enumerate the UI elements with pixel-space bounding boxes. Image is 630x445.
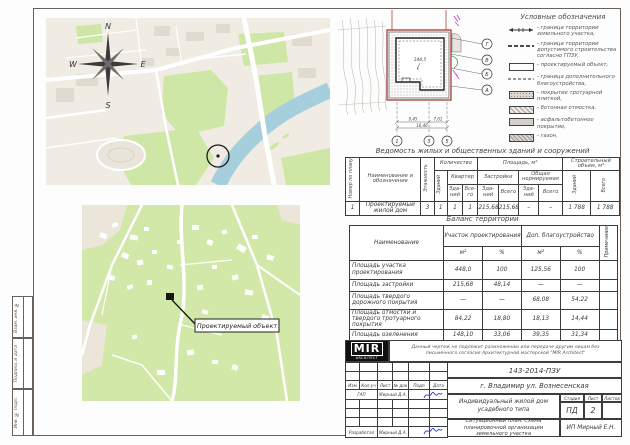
axis-label: 5 — [445, 139, 448, 145]
legend-label: - граница дополнительного благоустройств… — [537, 74, 621, 87]
compass-s: S — [105, 101, 110, 110]
role-developer-name: Мирный Д.А. — [378, 427, 409, 438]
legend-item: - покрытие тротуарной плиткой, — [505, 90, 621, 103]
dim-label: 9,45 — [409, 117, 418, 122]
mir-logo: MIR ARCHITECT — [345, 340, 389, 362]
cell-name: Площадь отмостки и твердого тротуарного … — [350, 309, 444, 329]
sheet-label: Лист — [584, 394, 602, 402]
cell: 1 — [447, 201, 462, 215]
buildings-table: Номер по плану Наименование и обозначени… — [345, 157, 620, 216]
legend-title: Условные обозначения — [505, 13, 621, 21]
green-mark — [452, 56, 458, 68]
topo-contours — [338, 18, 387, 115]
frame-attr-vzam: Взам. инв. № — [12, 296, 33, 338]
cell: 215,68 — [478, 201, 498, 215]
col-vol-buildings: Зданий — [562, 171, 591, 202]
role-gap-name: Мирный Д.А. — [378, 390, 409, 400]
frame-attr-label: Инв. № подл. — [14, 397, 19, 428]
cell: 448,0 — [444, 260, 483, 279]
divider — [23, 339, 24, 388]
col-apartments-group: Квартир — [447, 171, 478, 185]
cell-name: Проектируемый жилой дом — [360, 201, 421, 215]
cell: 18,13 — [521, 309, 560, 329]
axis-label: Б — [485, 72, 489, 78]
cell: 68,08 — [521, 291, 560, 309]
col-m2: м² — [444, 246, 483, 260]
col-podp: Подп — [409, 381, 430, 390]
col-koluch: Кол.уч — [360, 381, 378, 390]
col-label: Всего — [603, 178, 608, 192]
cell: — — [444, 291, 483, 309]
col-note: Примечание — [599, 226, 617, 261]
cell: 100 — [560, 260, 599, 279]
col-sub: Зда-ний — [478, 184, 498, 201]
cell: 215,68 — [498, 201, 518, 215]
stage-value: ПД — [560, 402, 584, 419]
stadium — [97, 140, 145, 170]
table-row: Площадь застройки 215,68 48,14 — — — [350, 279, 618, 291]
side-pavement — [452, 34, 461, 52]
sheet-value: 2 — [584, 402, 602, 419]
elevation-mark: 144,5 — [414, 57, 427, 63]
col-note-label: Примечание — [606, 226, 611, 257]
dim-label: 7,01 — [434, 117, 443, 122]
legend-item: - асфальтобетонное покрытие, — [505, 117, 621, 130]
frame-attr-inv: Инв. № подл. — [12, 389, 33, 436]
balance-table: Наименование Участок проектирования Доп.… — [349, 225, 618, 342]
stage-label: Стадия — [560, 394, 584, 402]
col-norm-group: Общая нормируемая — [519, 171, 563, 185]
logo-text: MIR — [351, 342, 384, 356]
col-dop-group: Доп. благоустройство — [521, 226, 599, 247]
legend-label: - покрытие тротуарной плиткой, — [537, 90, 621, 103]
table-row: Площадь отмостки и твердого тротуарного … — [350, 309, 618, 329]
dashed-line-icon — [505, 74, 537, 83]
signature-grid: Изм Кол.уч Лист № док Подп Дата ГАП Мирн… — [345, 362, 448, 438]
col-site-group: Участок проектирования — [444, 226, 522, 247]
col-num: Номер по плану — [346, 158, 360, 202]
logo-subtext: ARCHITECT — [356, 356, 378, 360]
col-label: Зданий — [438, 175, 443, 194]
company-name: ИП Мирный Е.Н. — [560, 419, 622, 437]
col-data: Дата — [430, 381, 448, 390]
cell: 1 — [463, 201, 478, 215]
cell: 18,80 — [482, 309, 521, 329]
cell-num: 1 — [346, 201, 360, 215]
col-sub: Всего — [498, 184, 518, 201]
col-num-label: Номер по плану — [350, 158, 355, 198]
col-name: Наименование и обозначение — [360, 158, 421, 202]
table-row: Площадь твердого дорожного покрытия — — … — [350, 291, 618, 309]
role-developer: Разработал — [346, 427, 378, 438]
paving-hatch-icon — [505, 90, 537, 99]
axis-label: В — [485, 58, 489, 64]
cell-name: Площадь твердого дорожного покрытия — [350, 291, 444, 309]
frame-attr-label: Взам. инв. № — [14, 302, 19, 333]
col-qty-buildings: Зданий — [434, 171, 447, 202]
sheets-value — [602, 402, 622, 419]
cell: – — [539, 201, 562, 215]
cell: 84,22 — [444, 309, 483, 329]
role-gap: ГАП — [346, 390, 378, 400]
cell: – — [519, 201, 539, 215]
col-ndok: № док — [393, 381, 409, 390]
project-object-icon — [505, 62, 537, 71]
frame-attr-label: Подпись и дата — [14, 345, 19, 382]
cell: 100 — [482, 260, 521, 279]
project-location: г. Владимир ул. Вознесенская — [447, 378, 622, 394]
col-area-group: Площадь, м² — [478, 158, 563, 171]
col-name: Наименование — [350, 226, 444, 261]
signature-cell — [409, 390, 430, 400]
cell-floors: 3 — [421, 201, 434, 215]
legend: Условные обозначения - граница территори… — [505, 13, 621, 145]
dashed-bold-line-icon — [505, 41, 537, 50]
col-sub: Всего — [539, 184, 562, 201]
cell-note — [599, 309, 617, 329]
cell: — — [560, 279, 599, 291]
legend-item: - граница дополнительного благоустройств… — [505, 74, 621, 87]
cell: 54,22 — [560, 291, 599, 309]
legend-label: - граница территории земельного участка, — [537, 25, 621, 38]
frame-attr-podpis: Подпись и дата — [12, 338, 33, 389]
cell: — — [482, 291, 521, 309]
buildings-table-title: Ведомость жилых и общественных зданий и … — [345, 147, 620, 155]
signature-cell — [409, 427, 430, 438]
compass-w: W — [69, 60, 78, 69]
legend-label: - граница территории допустимого строите… — [537, 41, 621, 60]
col-built-group: Застройки — [478, 171, 519, 185]
balance-table-title: Баланс территории — [345, 215, 620, 223]
cell: 14,44 — [560, 309, 599, 329]
boundary-line-icon — [505, 25, 537, 34]
col-m2: м² — [521, 246, 560, 260]
cell-name: Площадь застройки — [350, 279, 444, 291]
doc-number: 143-2014-ПЗУ — [447, 362, 622, 378]
col-volume-group: Строительный объем, м³ — [562, 158, 619, 171]
col-pct: % — [482, 246, 521, 260]
blind-area-hatch-icon — [505, 105, 537, 114]
cell: 1 — [434, 201, 447, 215]
col-floors: Этажность — [421, 158, 434, 202]
col-sub: Зда-ний — [519, 184, 539, 201]
disclaimer: Данный чертеж не подлежит размножению ил… — [389, 340, 622, 362]
cell: 1 788 — [562, 201, 591, 215]
cell: 1 788 — [591, 201, 620, 215]
legend-item: - проектируемый объект, — [505, 62, 621, 71]
cell: — — [521, 279, 560, 291]
col-floors-label: Этажность — [425, 164, 430, 192]
title-block: MIR ARCHITECT Данный чертеж не подлежит … — [345, 340, 622, 437]
asphalt-icon — [505, 117, 537, 126]
legend-label: - асфальтобетонное покрытие, — [537, 117, 621, 130]
col-sub: Зда-ний — [447, 184, 462, 201]
col-pct: % — [560, 246, 599, 260]
table-row: Площадь участка проектирования 448,0 100… — [350, 260, 618, 279]
axis-label: 1 — [395, 139, 398, 145]
legend-item: - газон. — [505, 133, 621, 142]
axes-bottom: 1 3 5 — [392, 136, 452, 146]
col-sub: Все-го — [463, 184, 478, 201]
col-list: Лист — [378, 381, 393, 390]
cell-note — [599, 279, 617, 291]
compass-n: N — [105, 22, 111, 31]
city-map: N W E S — [46, 18, 330, 185]
legend-label: - бетонная отмостка, — [537, 105, 596, 111]
divider — [23, 390, 24, 435]
lawn-hatch-icon — [505, 133, 537, 142]
cell-note — [599, 291, 617, 309]
project-name: Индивидуальный жилой дом усадебного типа — [447, 394, 560, 419]
table-row: 1 Проектируемый жилой дом 3 1 1 1 215,68… — [346, 201, 620, 215]
col-izm: Изм — [346, 381, 360, 390]
cell-name: Площадь участка проектирования — [350, 260, 444, 279]
legend-label: - проектируемый объект, — [537, 62, 608, 68]
legend-item: - бетонная отмостка, — [505, 105, 621, 114]
cell: 125,56 — [521, 260, 560, 279]
sheets-label: Листов — [602, 394, 622, 402]
col-label: Зданий — [574, 175, 579, 194]
site-plan: 144,5 9,45 7,01 16,46 1 3 5 Г В Б А — [334, 10, 504, 150]
sheet-title: Ситуационный план. Схема планировочной о… — [447, 419, 560, 437]
dim-label: 16,46 — [416, 123, 428, 128]
legend-label: - газон. — [537, 133, 558, 139]
cell-note — [599, 260, 617, 279]
col-qty-group: Количество — [434, 158, 478, 171]
area-map: Проектируемый объект — [82, 205, 300, 401]
axis-label: А — [484, 88, 489, 94]
cell: 48,14 — [482, 279, 521, 291]
legend-item: - граница территории земельного участка, — [505, 25, 621, 38]
col-vol-total: Всего — [591, 171, 620, 202]
cell: 215,68 — [444, 279, 483, 291]
divider — [23, 297, 24, 337]
axis-label: 3 — [427, 139, 430, 145]
legend-item: - граница территории допустимого строите… — [505, 41, 621, 60]
object-label: Проектируемый объект — [197, 322, 277, 330]
